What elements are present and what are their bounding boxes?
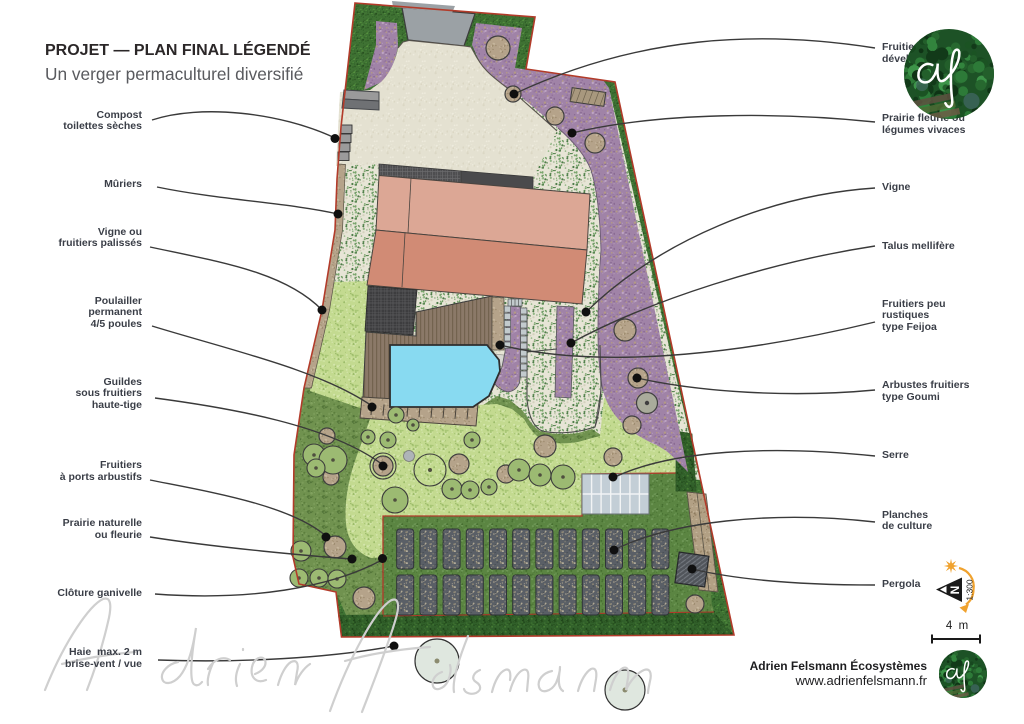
svg-text:1:300: 1:300 <box>965 579 975 601</box>
svg-text:N: N <box>948 586 962 595</box>
